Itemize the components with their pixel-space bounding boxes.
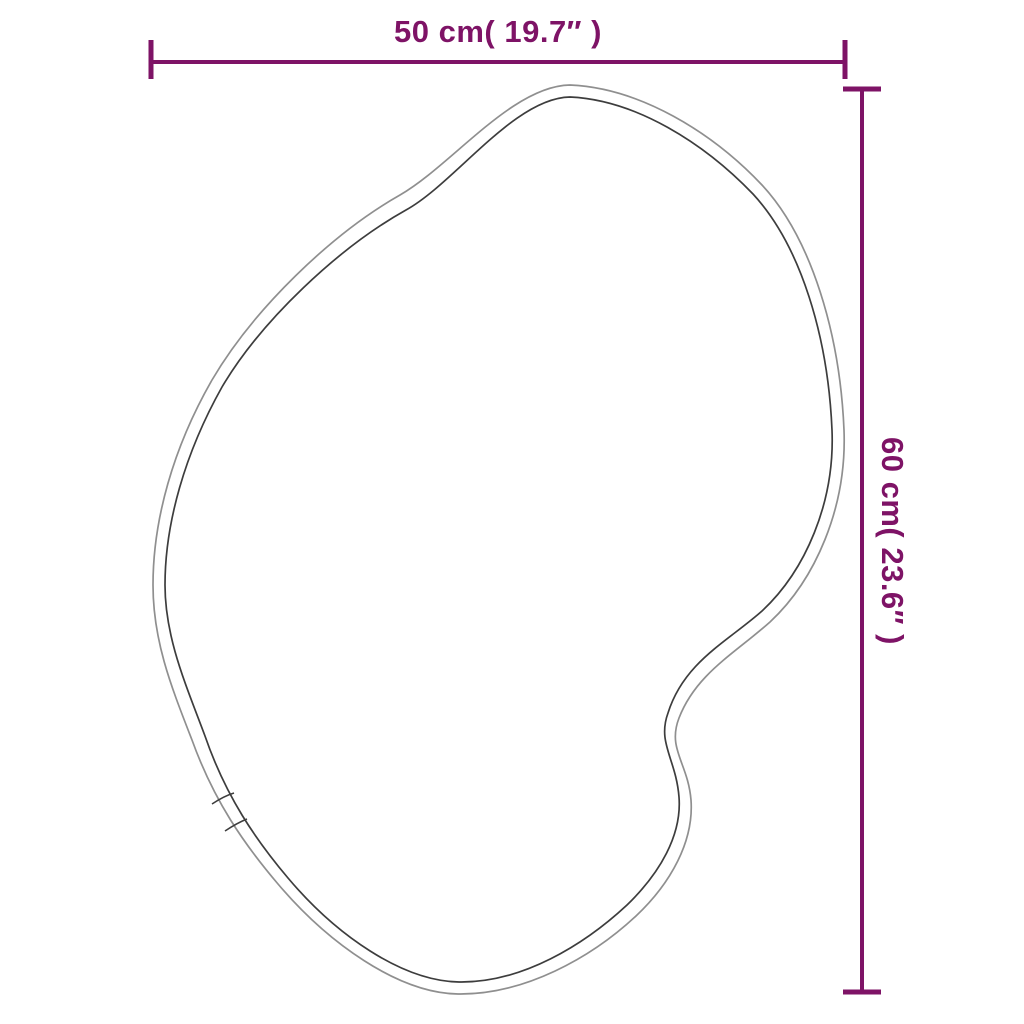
- frame-seam-mark: [212, 793, 247, 831]
- mirror-outline-inner: [165, 97, 832, 982]
- diagram-canvas: [0, 0, 1024, 1024]
- mirror-outline-outer: [153, 85, 844, 994]
- product-dimension-diagram: 50 cm( 19.7″ ) 60 cm( 23.6″ ): [0, 0, 1024, 1024]
- width-dimension-label: 50 cm( 19.7″ ): [151, 14, 845, 50]
- height-dimension-label: 60 cm( 23.6″ ): [874, 88, 910, 993]
